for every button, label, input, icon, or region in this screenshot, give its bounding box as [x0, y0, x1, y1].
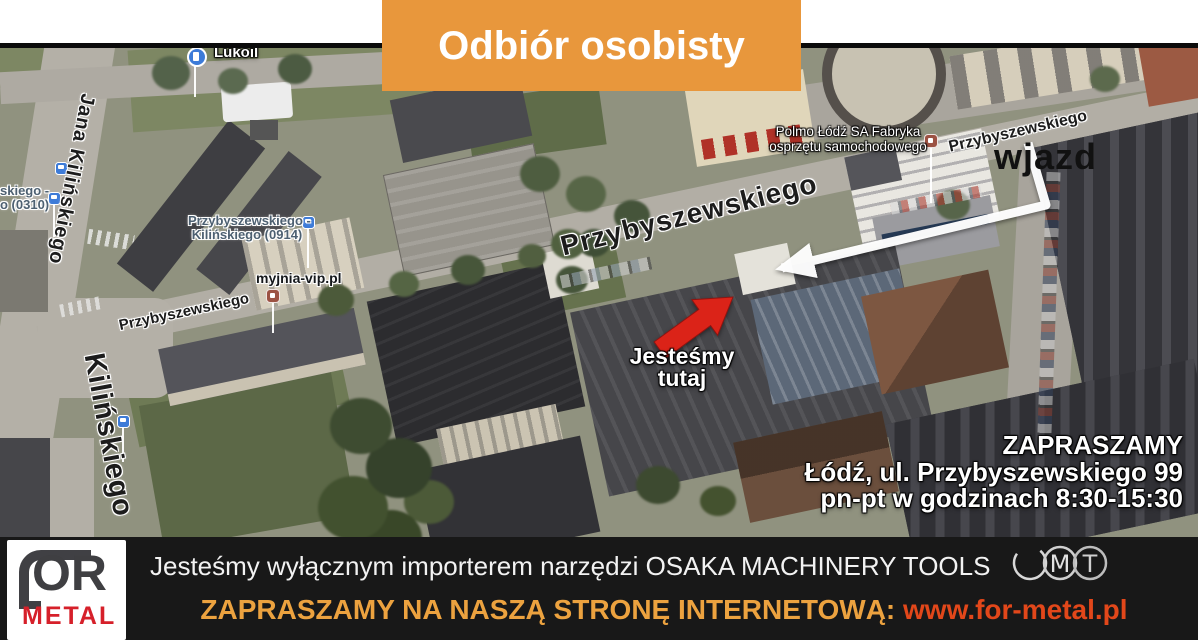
invitation-block: ZAPRASZAMY Łódź, ul. Przybyszewskiego 99… [804, 432, 1183, 512]
logo-metal-text: METAL [22, 602, 116, 631]
footer-bar: OR METAL Jesteśmy wyłącznym importerem n… [0, 537, 1198, 640]
pickup-location-graphic: Lukoil Jana Kilińskiego skiego - o (0310… [0, 0, 1198, 640]
invite-title: ZAPRASZAMY [804, 432, 1183, 459]
omt-logo: M T [1008, 540, 1108, 586]
website-url[interactable]: www.for-metal.pl [903, 594, 1128, 625]
here-line2: tutaj [630, 367, 735, 389]
entrance-label: wjazd [994, 136, 1097, 178]
here-line1: Jesteśmy [630, 345, 735, 367]
banner-title: Odbiór osobisty [438, 22, 745, 69]
pickup-banner: Odbiór osobisty [382, 0, 801, 91]
website-invite-line: ZAPRASZAMY NA NASZĄ STRONĘ INTERNETOWĄ: … [130, 594, 1198, 626]
omt-letter-m: M [1050, 550, 1071, 578]
importer-text: Jesteśmy wyłącznym importerem narzędzi O… [150, 551, 990, 582]
website-invite-label: ZAPRASZAMY NA NASZĄ STRONĘ INTERNETOWĄ: [200, 594, 895, 625]
invite-hours: pn-pt w godzinach 8:30-15:30 [804, 485, 1183, 512]
logo-or-text: OR [32, 544, 107, 602]
omt-letter-t: T [1082, 550, 1098, 578]
we-are-here-label: Jesteśmy tutaj [630, 345, 735, 389]
invite-address: Łódź, ul. Przybyszewskiego 99 [804, 459, 1183, 486]
for-metal-logo: OR METAL [7, 540, 126, 640]
